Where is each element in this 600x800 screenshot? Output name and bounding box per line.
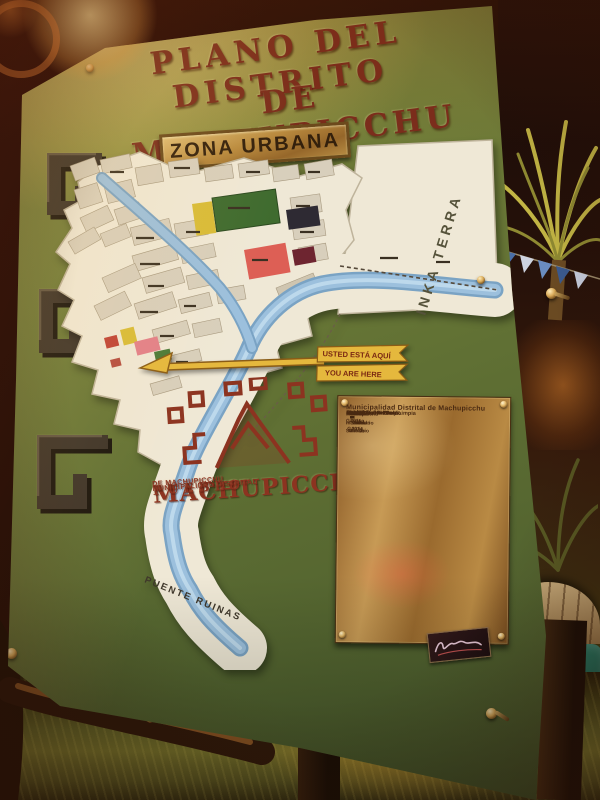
night-photo-of-map-sign: PLANO DEL DISTRITO DE MACHUPICCHU ZONA U… bbox=[0, 0, 600, 800]
municipal-logo: MACHUPICCHU PUEBLO MUNICIPALIDAD DISTRIT… bbox=[145, 371, 358, 584]
bolt-stem bbox=[494, 710, 510, 722]
lens-flare-ring bbox=[0, 0, 60, 78]
screw-icon bbox=[500, 401, 507, 408]
directory-plaque: Municipalidad Distrital de Machupicchu M… bbox=[335, 395, 512, 645]
bolt-icon bbox=[86, 64, 94, 72]
graffiti-sticker bbox=[427, 627, 492, 663]
screw-icon bbox=[339, 631, 346, 638]
bolt-icon bbox=[477, 276, 485, 284]
logo-mountain-glyph bbox=[145, 371, 351, 480]
screw-icon bbox=[498, 633, 505, 640]
